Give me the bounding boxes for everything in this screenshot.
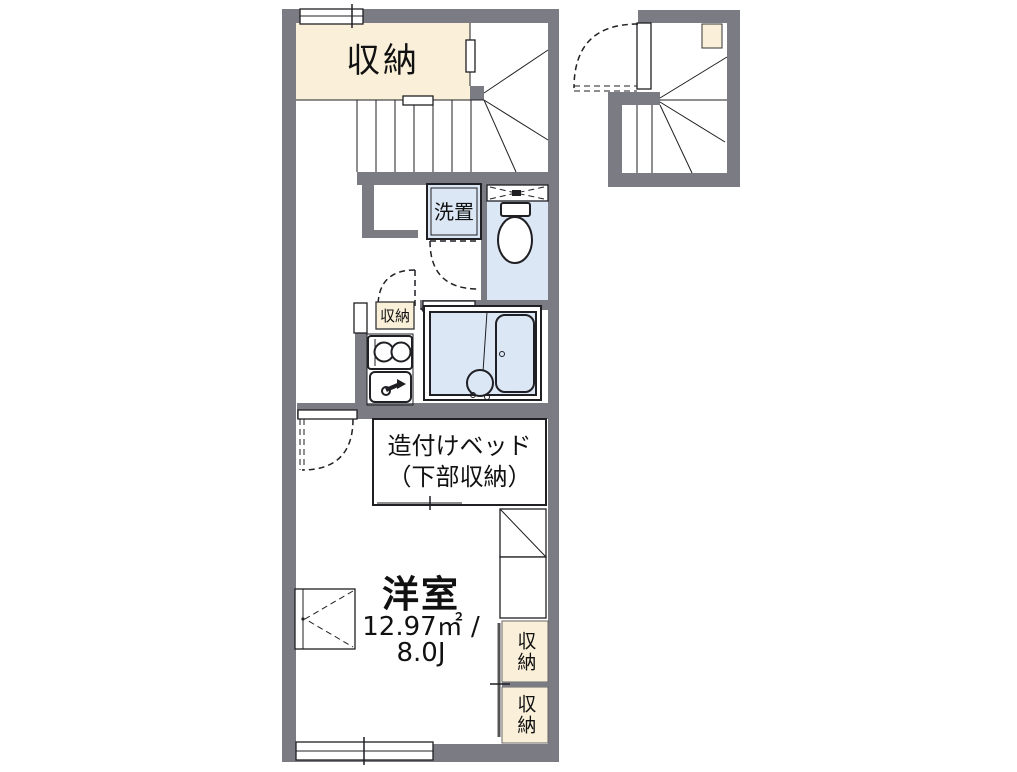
kitchen-storage-label: 収納 bbox=[376, 302, 414, 329]
stairwell-wall-right bbox=[727, 10, 740, 187]
stairwell-closet-fill bbox=[702, 24, 722, 48]
bed-label-line2: （下部収納） bbox=[388, 462, 532, 493]
bed-label-line1: 造付けベッド bbox=[388, 431, 532, 462]
stair-winder-hub bbox=[470, 86, 484, 100]
wall-nook-vertical bbox=[362, 185, 374, 237]
wall-right bbox=[548, 9, 559, 762]
washer-label: 洗置 bbox=[427, 184, 481, 239]
stairwell-door-arc bbox=[574, 24, 638, 88]
stair-winder-line bbox=[484, 50, 548, 93]
wash-basin-icon bbox=[467, 370, 493, 396]
stairwell-landing-block bbox=[608, 92, 660, 105]
wall-nook-horizontal bbox=[362, 230, 418, 238]
room-size-label: 8.0J bbox=[331, 640, 511, 668]
stair-winder-line bbox=[484, 100, 548, 140]
window-pivot-dot bbox=[301, 617, 304, 620]
toilet-tank bbox=[501, 203, 530, 216]
stove-burner bbox=[392, 343, 411, 362]
stairwell-wall-left bbox=[608, 92, 622, 187]
floor-plan: 収納 洗置 収納 造付けベッド （下部収納） 洋室 12.97㎡ / 8.0J … bbox=[0, 0, 1017, 772]
stair-winder-line bbox=[660, 57, 727, 98]
bathtub-icon bbox=[496, 315, 534, 392]
closet-label: 収納 bbox=[296, 23, 470, 100]
louver-center bbox=[512, 190, 521, 196]
wall-left bbox=[282, 9, 296, 762]
louver-window-icon bbox=[487, 185, 548, 201]
stair-winder-line bbox=[660, 102, 725, 142]
bathroom bbox=[424, 306, 541, 400]
toilet-icon bbox=[498, 203, 532, 263]
stair-winder-line bbox=[484, 100, 516, 172]
room-name-label: 洋室 bbox=[331, 573, 511, 617]
storage-right-upper-label: 収納 bbox=[502, 621, 548, 682]
toilet-bowl bbox=[498, 217, 532, 263]
bed-label: 造付けベッド （下部収納） bbox=[373, 419, 546, 505]
bedroom-door-arc bbox=[302, 419, 353, 470]
stairwell-wall-bottom bbox=[608, 173, 740, 187]
bedroom-door-opening bbox=[298, 410, 357, 419]
stair-winder-line bbox=[660, 105, 692, 173]
kitchen-side-opening bbox=[354, 303, 367, 333]
storage-right-lower-label: 収納 bbox=[502, 687, 548, 743]
washroom-door-arc bbox=[430, 241, 478, 289]
wall-kitchen-left bbox=[355, 333, 367, 405]
stairwell-wall-top bbox=[638, 10, 740, 23]
stairwell-door-opening bbox=[637, 23, 651, 89]
